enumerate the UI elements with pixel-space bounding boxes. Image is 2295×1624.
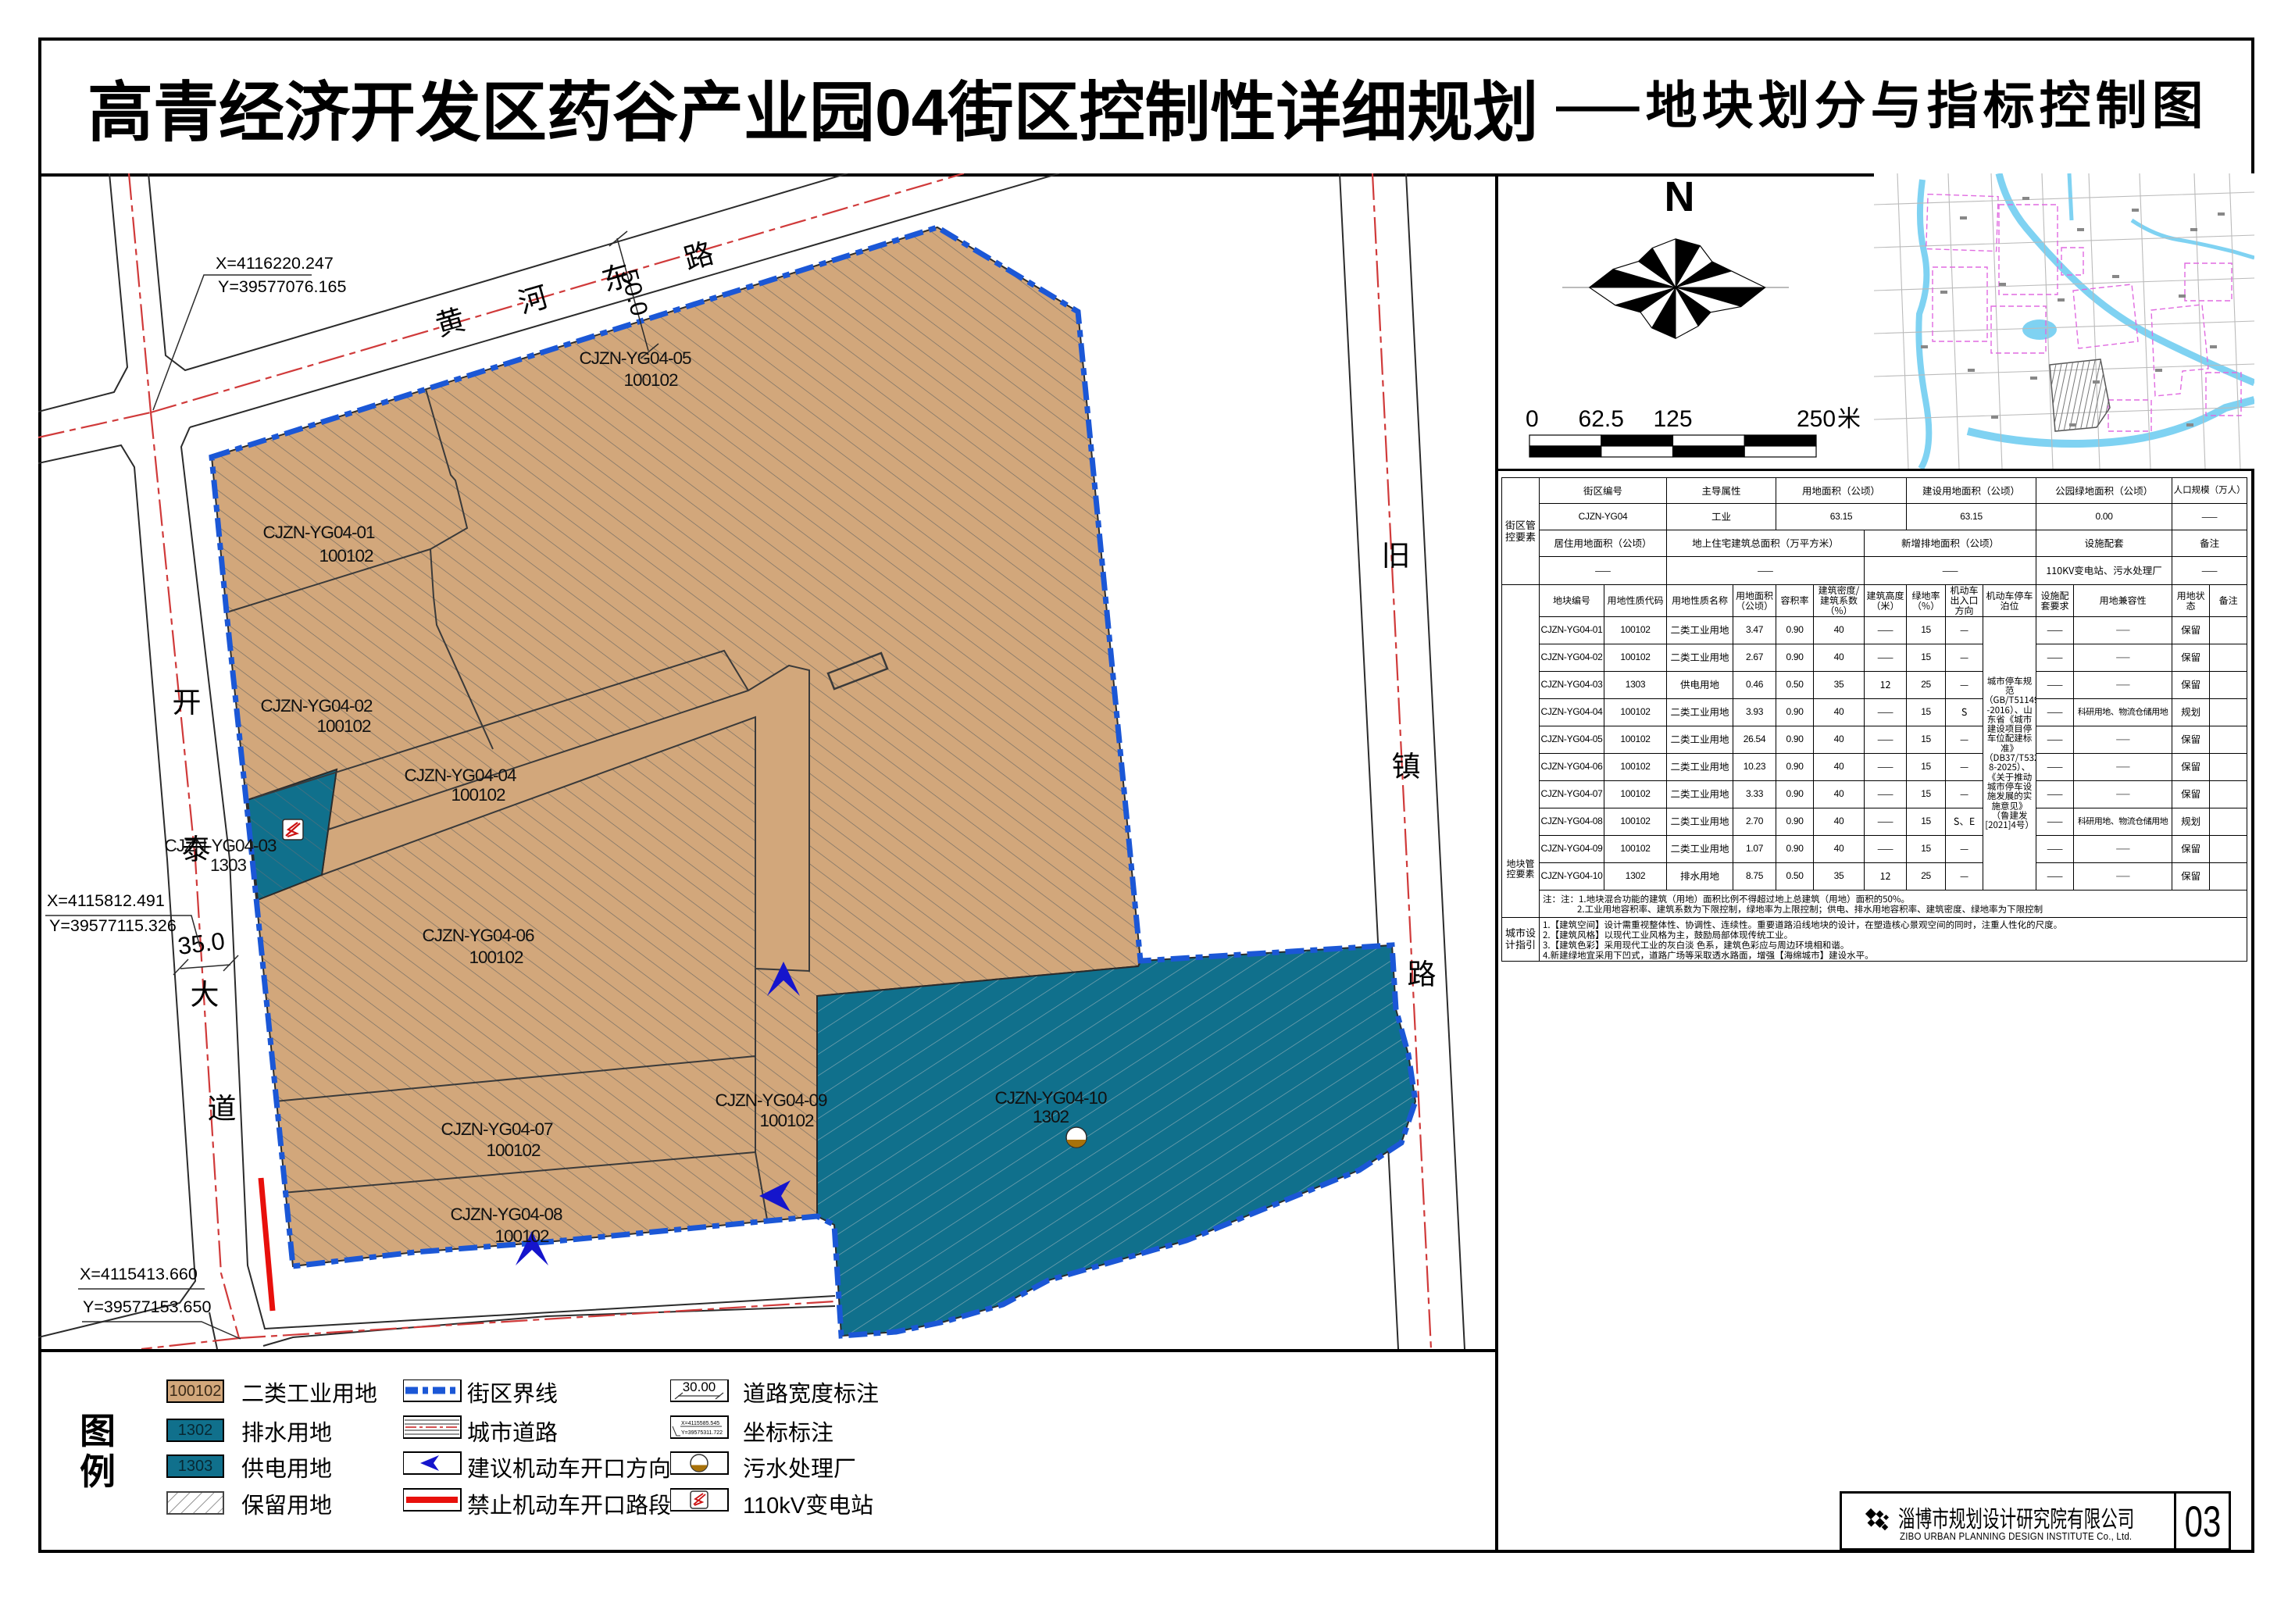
svg-text:X=4115413.660: X=4115413.660	[80, 1265, 198, 1283]
svg-text:100102: 100102	[469, 948, 523, 967]
svg-text:CJZN-YG04-08: CJZN-YG04-08	[450, 1205, 562, 1224]
svg-text:30.00: 30.00	[683, 1380, 716, 1394]
svg-text:Y=39577115.326: Y=39577115.326	[49, 916, 177, 935]
svg-text:Y=39577153.650: Y=39577153.650	[83, 1297, 211, 1316]
svg-text:道: 道	[208, 1085, 237, 1127]
svg-text:1302: 1302	[1033, 1107, 1069, 1126]
svg-text:62.5: 62.5	[1579, 406, 1624, 432]
svg-text:CJZN-YG04-09: CJZN-YG04-09	[715, 1090, 827, 1110]
svg-text:镇: 镇	[1392, 743, 1421, 785]
svg-text:N: N	[1665, 173, 1695, 220]
svg-text:CJZN-YG04-07: CJZN-YG04-07	[441, 1119, 553, 1139]
svg-text:100102: 100102	[451, 785, 505, 805]
svg-text:CJZN-YG04-01: CJZN-YG04-01	[262, 523, 375, 542]
svg-text:旧: 旧	[1382, 532, 1411, 574]
svg-text:100102: 100102	[759, 1111, 814, 1130]
svg-text:100102: 100102	[623, 370, 678, 390]
svg-text:CJZN-YG04-04: CJZN-YG04-04	[404, 766, 516, 785]
svg-text:路: 路	[1408, 951, 1437, 993]
svg-text:100102: 100102	[316, 716, 371, 736]
svg-text:250: 250	[1797, 406, 1836, 432]
svg-text:Y=39575311.722: Y=39575311.722	[681, 1430, 723, 1436]
svg-text:X=4115585.545: X=4115585.545	[681, 1421, 719, 1426]
svg-text:黄: 黄	[430, 296, 469, 344]
svg-text:开: 开	[173, 679, 202, 721]
svg-text:X=4116220.247: X=4116220.247	[216, 254, 334, 273]
svg-text:1303: 1303	[210, 855, 247, 875]
svg-text:CJZN-YG04-05: CJZN-YG04-05	[579, 348, 691, 368]
svg-text:CJZN-YG04-03: CJZN-YG04-03	[164, 836, 277, 855]
svg-text:125: 125	[1653, 406, 1692, 432]
svg-text:X=4115812.491: X=4115812.491	[47, 891, 165, 910]
svg-text:河: 河	[512, 273, 551, 322]
svg-text:CJZN-YG04-10: CJZN-YG04-10	[994, 1088, 1107, 1108]
svg-text:0: 0	[1526, 406, 1539, 432]
svg-text:CJZN-YG04-06: CJZN-YG04-06	[422, 926, 534, 945]
svg-text:东: 东	[596, 252, 635, 300]
svg-text:Y=39577076.165: Y=39577076.165	[218, 277, 346, 296]
svg-text:35.0: 35.0	[177, 927, 227, 960]
svg-text:100102: 100102	[319, 546, 373, 566]
svg-text:大: 大	[191, 971, 220, 1013]
svg-text:路: 路	[678, 230, 717, 278]
svg-text:CJZN-YG04-02: CJZN-YG04-02	[260, 696, 373, 716]
svg-text:100102: 100102	[486, 1140, 541, 1160]
svg-text:米: 米	[1837, 399, 1861, 434]
svg-text:100102: 100102	[494, 1226, 549, 1246]
